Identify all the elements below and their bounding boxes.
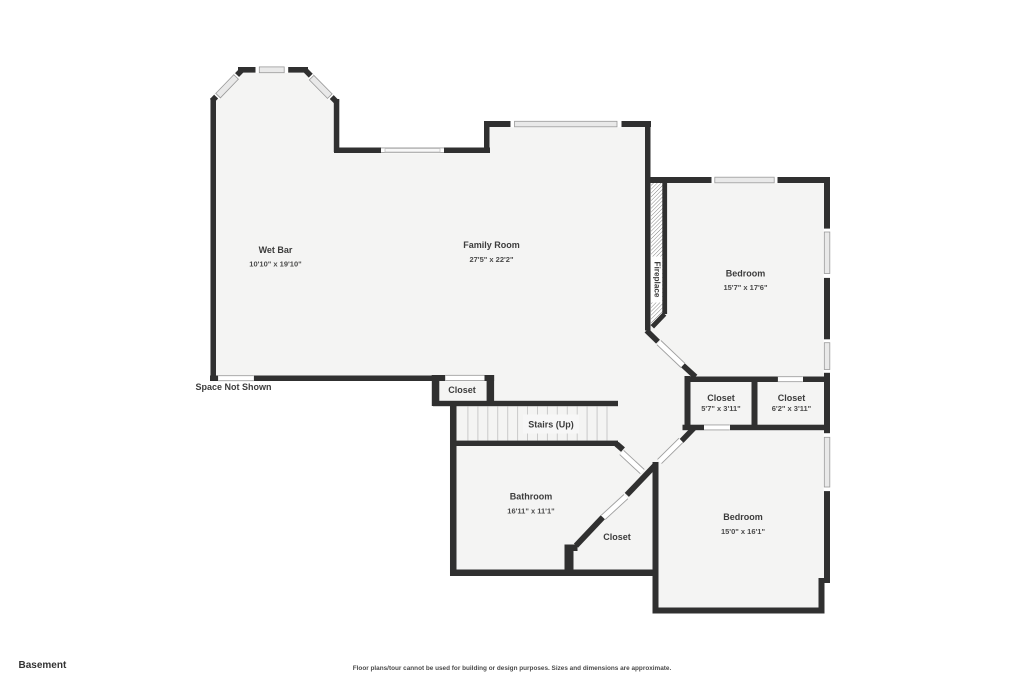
svg-text:Closet: Closet (603, 532, 631, 542)
svg-text:Closet: Closet (448, 385, 476, 395)
svg-text:Basement: Basement (19, 660, 67, 671)
svg-text:27'5" x 22'2": 27'5" x 22'2" (469, 255, 513, 264)
svg-text:6'2" x 3'11": 6'2" x 3'11" (772, 404, 812, 413)
svg-text:Bathroom: Bathroom (510, 492, 553, 502)
svg-text:Bedroom: Bedroom (723, 512, 763, 522)
svg-text:Fireplace: Fireplace (652, 262, 661, 298)
svg-text:Floor plans/tour cannot be use: Floor plans/tour cannot be used for buil… (353, 665, 672, 672)
svg-text:15'0" x 16'1": 15'0" x 16'1" (721, 527, 765, 536)
svg-text:Wet Bar: Wet Bar (259, 245, 293, 255)
svg-text:Family Room: Family Room (463, 240, 520, 250)
svg-text:Bedroom: Bedroom (726, 269, 766, 279)
svg-text:10'10" x 19'10": 10'10" x 19'10" (249, 259, 302, 268)
svg-text:Stairs (Up): Stairs (Up) (528, 420, 574, 430)
svg-text:16'11" x 11'1": 16'11" x 11'1" (507, 506, 555, 515)
svg-text:5'7" x 3'11": 5'7" x 3'11" (701, 404, 741, 413)
svg-text:15'7" x 17'6": 15'7" x 17'6" (723, 283, 767, 292)
svg-text:Space Not Shown: Space Not Shown (196, 382, 272, 392)
svg-text:Closet: Closet (778, 393, 806, 403)
svg-text:Closet: Closet (707, 393, 735, 403)
